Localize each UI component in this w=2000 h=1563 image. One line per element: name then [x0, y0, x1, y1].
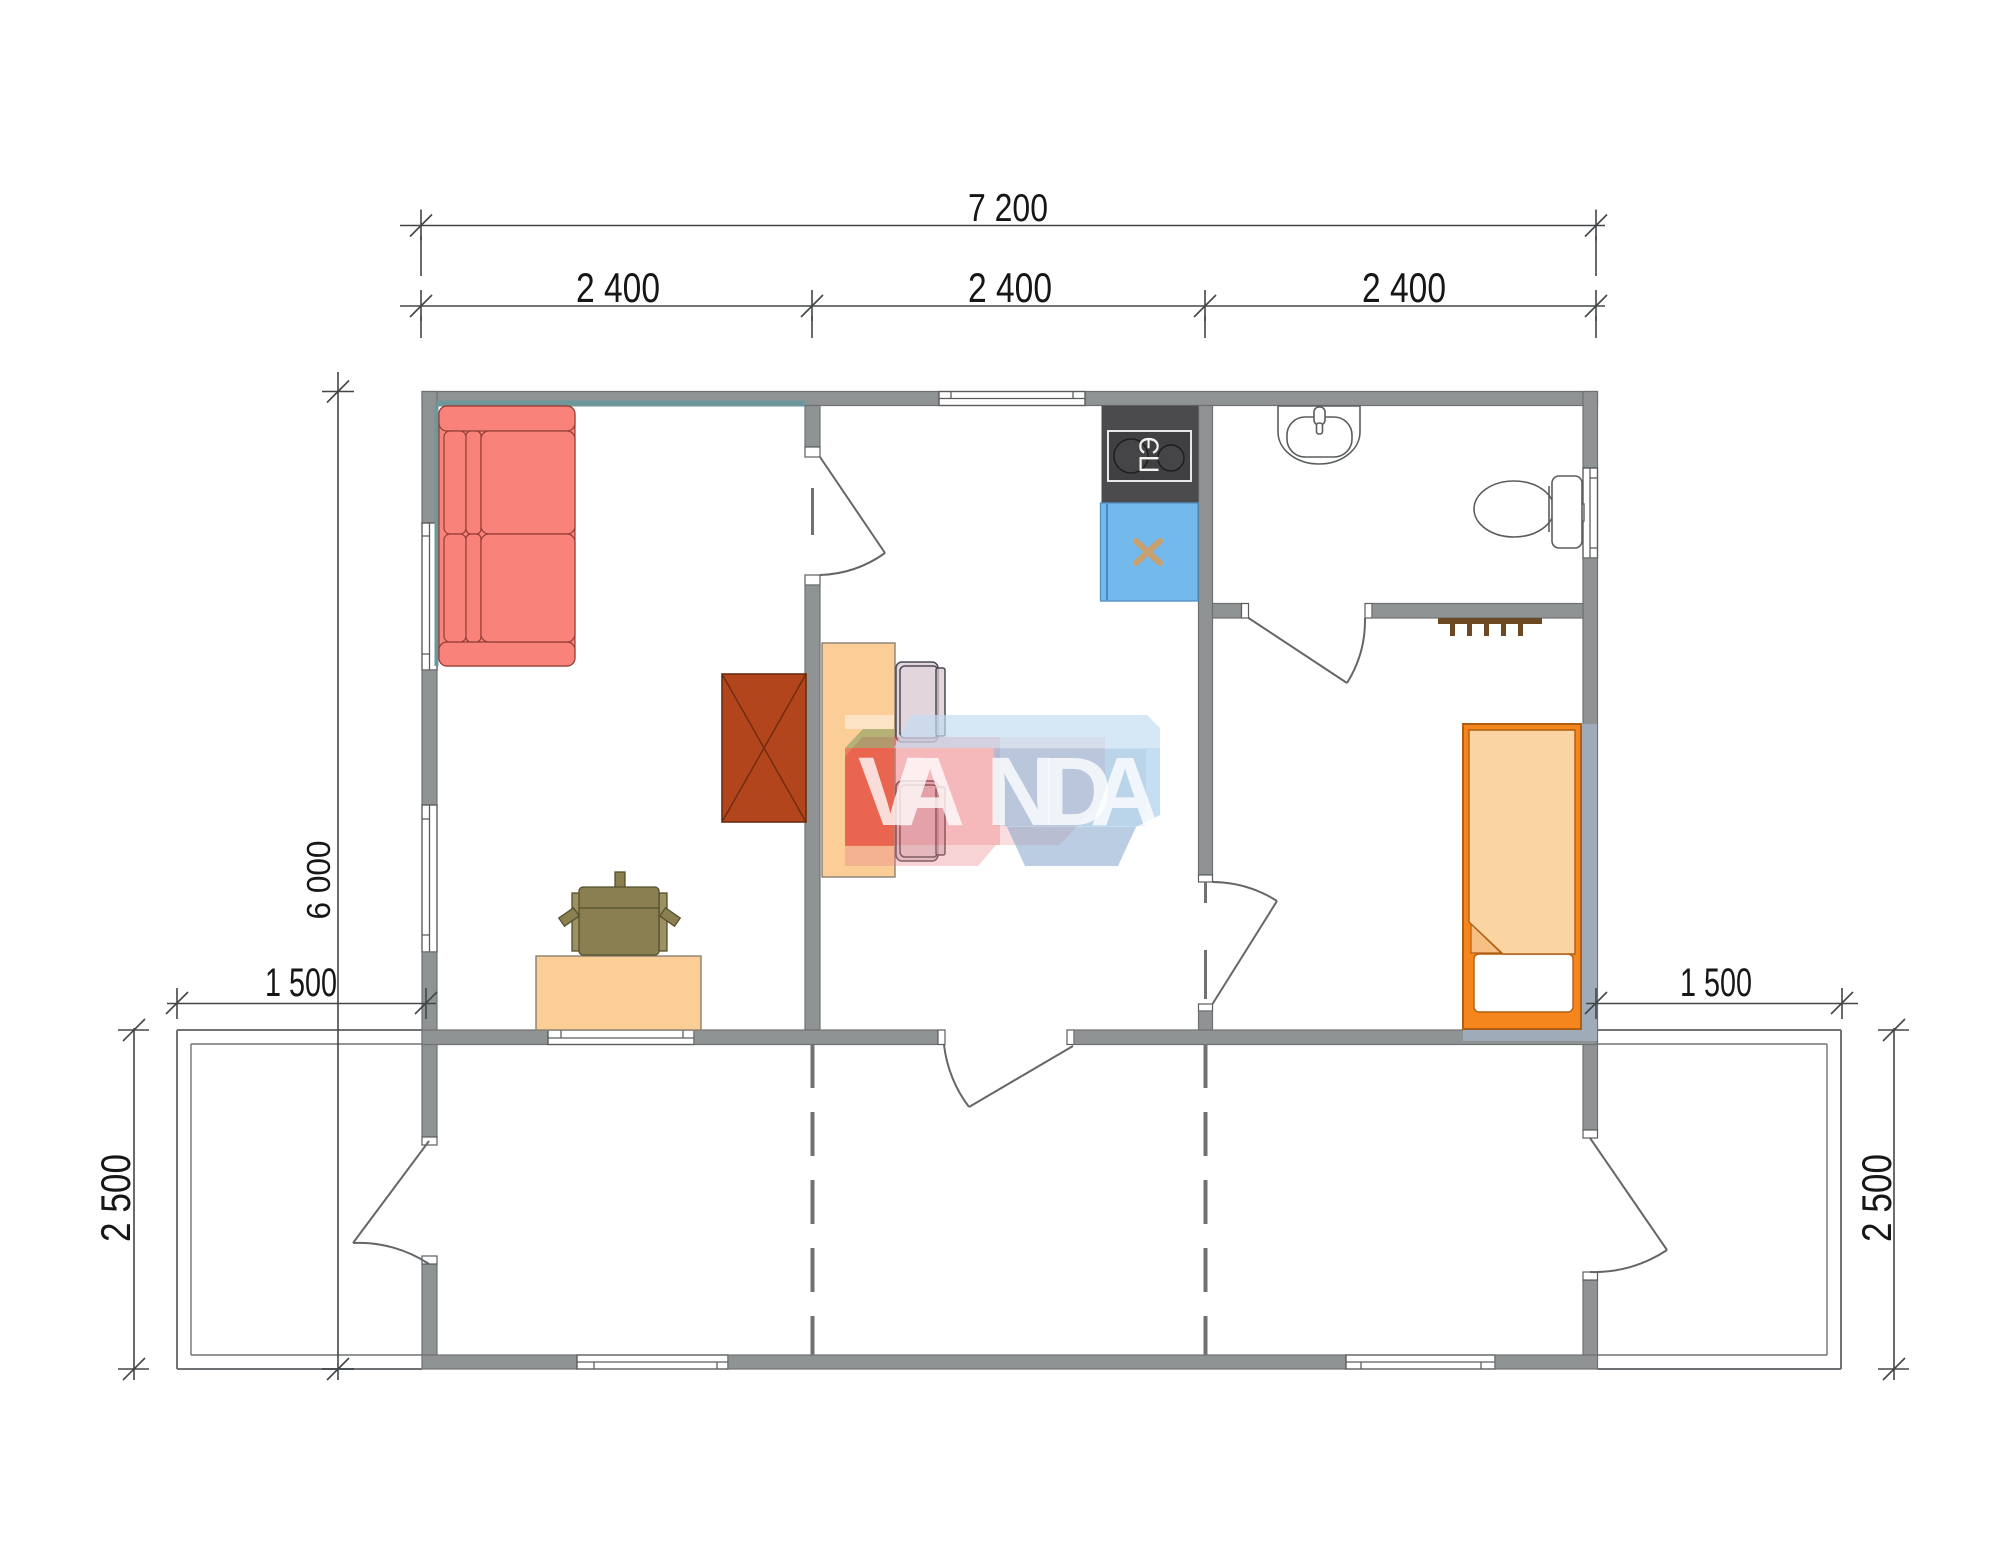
svg-text:A: A	[895, 737, 965, 846]
svg-text:ПЭ: ПЭ	[1134, 437, 1165, 473]
svg-text:2 400: 2 400	[576, 264, 660, 311]
svg-text:2 500: 2 500	[92, 1154, 139, 1242]
svg-text:1 500: 1 500	[265, 961, 337, 1005]
svg-text:A: A	[1090, 737, 1160, 846]
svg-text:2 500: 2 500	[1853, 1154, 1900, 1242]
svg-text:2 400: 2 400	[1362, 264, 1446, 311]
svg-text:2 400: 2 400	[968, 264, 1052, 311]
svg-text:1 500: 1 500	[1680, 961, 1752, 1005]
svg-text:6 000: 6 000	[300, 841, 337, 920]
svg-text:7 200: 7 200	[968, 187, 1048, 230]
